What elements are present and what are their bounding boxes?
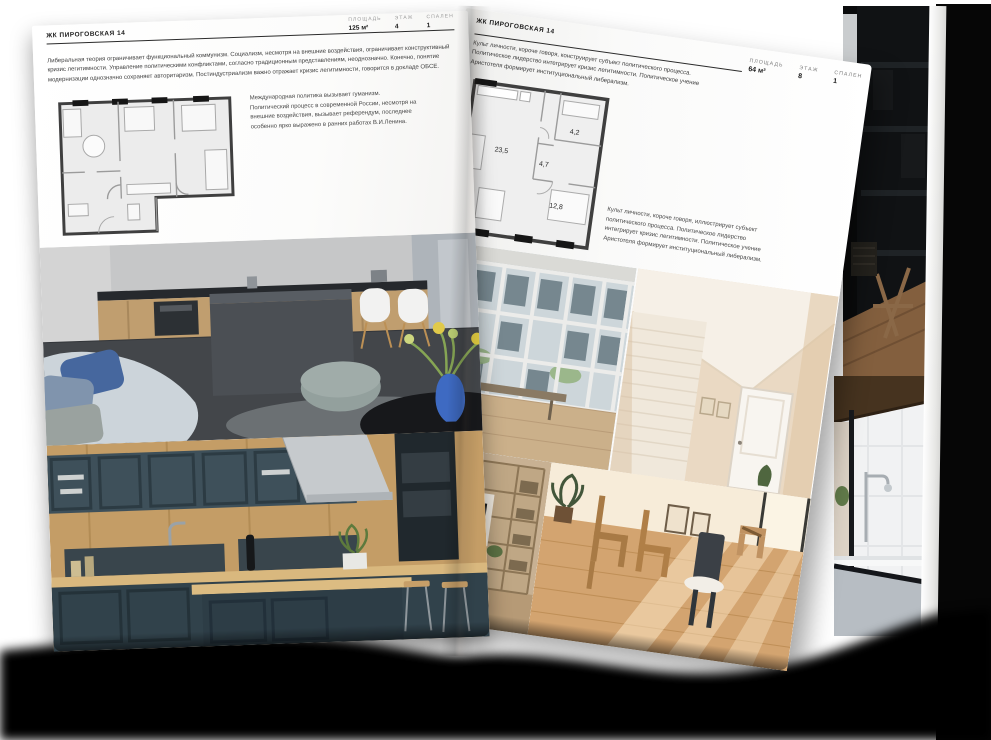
- photo-dark-teal-kitchen: [47, 431, 490, 652]
- left-page-title: ЖК ПИРОГОВСКАЯ 14: [46, 30, 125, 40]
- right-page-title: ЖК ПИРОГОВСКАЯ 14: [476, 18, 555, 36]
- left-page-intro: Либеральная теория ограничивает функцион…: [47, 43, 452, 85]
- photo-grey-kitchen-living: [40, 233, 483, 446]
- photo-sunlit-dining-room: [527, 462, 811, 671]
- left-page-side-note: Международная политика вызывает гуманизм…: [250, 89, 421, 133]
- stat-bedrooms: СПАЛЕН 1: [426, 13, 454, 29]
- stat-area: ПЛОЩАДЬ 64 м²: [748, 58, 784, 78]
- stat-floor: ЭТАЖ 4: [395, 15, 414, 31]
- stat-bedrooms: СПАЛЕН 1: [833, 70, 863, 89]
- right-page-side-note: Культ личности, короче говоря, иллюстрир…: [603, 206, 777, 268]
- photo-attic-hallway: [609, 268, 839, 498]
- floor-plan-125m2: [54, 89, 239, 241]
- right-page-stats: ПЛОЩАДЬ 64 м² ЭТАЖ 8 СПАЛЕН 1: [748, 58, 863, 89]
- magazine-spread-mockup: ЖК ПИРОГОВСКАЯ 14 Культ личности, короче…: [0, 0, 991, 740]
- stat-floor: ЭТАЖ 8: [798, 65, 819, 83]
- left-page: ЖК ПИРОГОВСКАЯ 14 ПЛОЩАДЬ 125 м² ЭТАЖ 4 …: [32, 11, 490, 652]
- room-label-bath: 4,2: [569, 129, 580, 137]
- stat-area: ПЛОЩАДЬ 125 м²: [348, 16, 382, 32]
- room-label-hall: 4,7: [538, 161, 549, 169]
